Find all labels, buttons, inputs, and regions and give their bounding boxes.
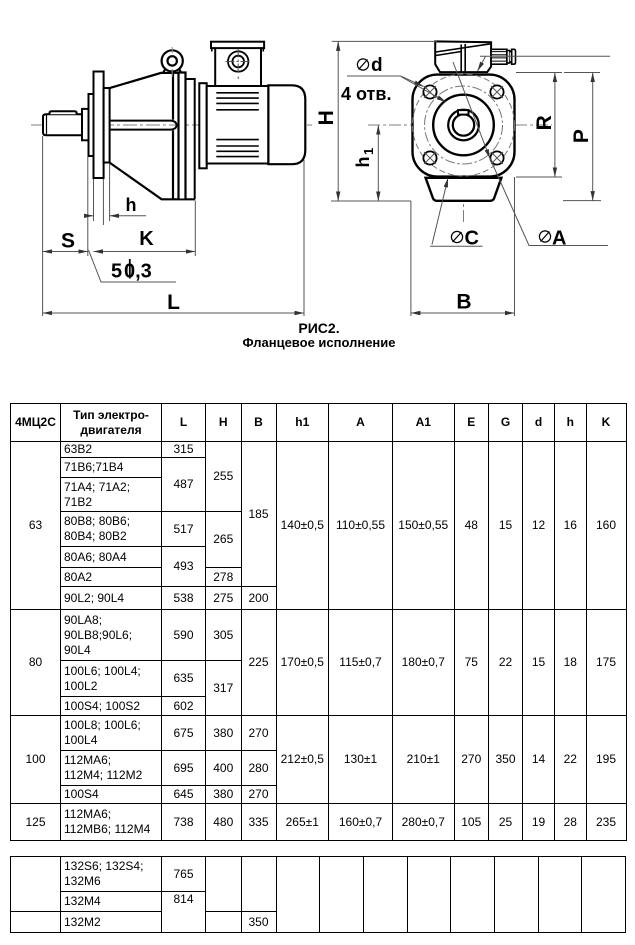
- svg-text:R: R: [533, 115, 556, 130]
- svg-text:h: h: [353, 157, 373, 168]
- svg-text:0,3: 0,3: [124, 261, 152, 283]
- svg-text:h: h: [126, 195, 137, 215]
- svg-text:S: S: [61, 230, 75, 253]
- svg-text:L: L: [167, 291, 180, 314]
- svg-text:H: H: [315, 110, 338, 125]
- svg-text:C: C: [465, 228, 479, 250]
- svg-text:5: 5: [111, 261, 122, 283]
- svg-text:A: A: [552, 228, 566, 250]
- svg-text:d: d: [371, 55, 383, 76]
- svg-text:4 отв.: 4 отв.: [341, 84, 391, 104]
- svg-text:Фланцевое исполнение: Фланцевое исполнение: [242, 335, 395, 350]
- svg-text:B: B: [456, 291, 471, 314]
- svg-text:K: K: [139, 228, 154, 250]
- svg-text:P: P: [570, 129, 593, 143]
- svg-text:1: 1: [361, 148, 376, 155]
- svg-text:РИС2.: РИС2.: [298, 320, 339, 336]
